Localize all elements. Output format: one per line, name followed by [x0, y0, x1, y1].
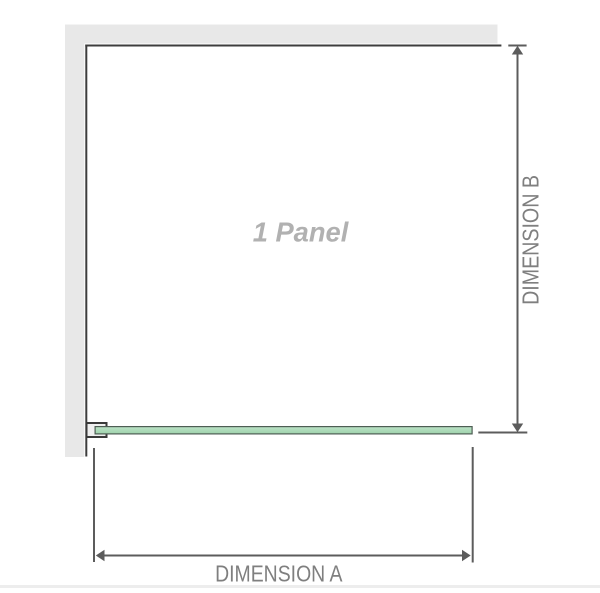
- svg-text:1 Panel: 1 Panel: [253, 216, 350, 247]
- svg-text:DIMENSION B: DIMENSION B: [518, 175, 544, 305]
- svg-text:DIMENSION A: DIMENSION A: [215, 561, 343, 587]
